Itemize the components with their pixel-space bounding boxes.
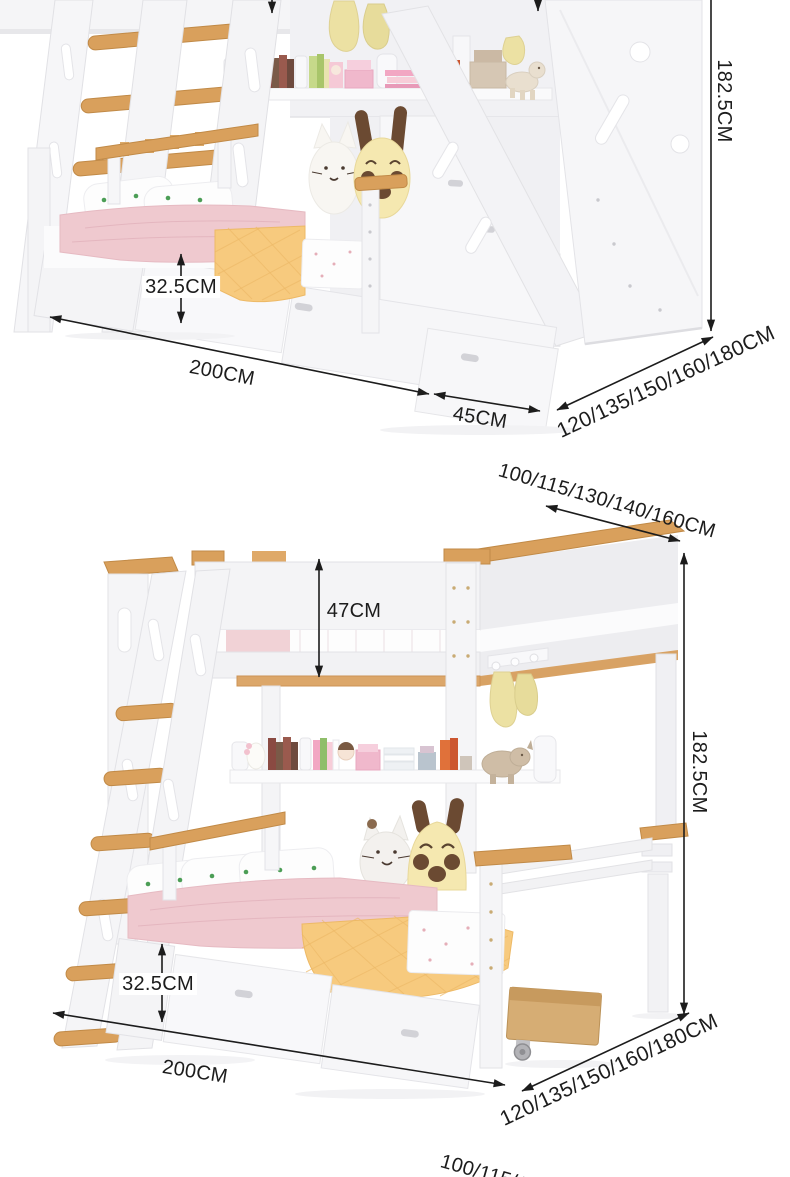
bed2-under-bed-label: 32.5CM <box>119 973 197 995</box>
bed1-yellow-quilt <box>215 226 305 302</box>
bed2-total-height-label: 182.5CM <box>689 730 709 813</box>
bed2-bookshelf <box>230 736 560 784</box>
bed2-guard-height-label: 47CM <box>327 601 382 621</box>
bed2-wall-hooks <box>488 648 548 727</box>
bed1-photo <box>0 0 702 435</box>
product-dimension-page: 182.5CM 32.5CM 200CM 45CM 120/135/150/16… <box>0 0 790 1177</box>
bed2-footboard <box>474 838 652 1068</box>
bed2-rolling-drawer <box>505 987 602 1065</box>
bed2-plush-bunny <box>408 797 466 890</box>
bed1-total-height-label: 182.5CM <box>714 59 734 142</box>
bed-illustrations <box>0 0 790 1177</box>
bed1-under-bed-label: 32.5CM <box>142 276 220 298</box>
